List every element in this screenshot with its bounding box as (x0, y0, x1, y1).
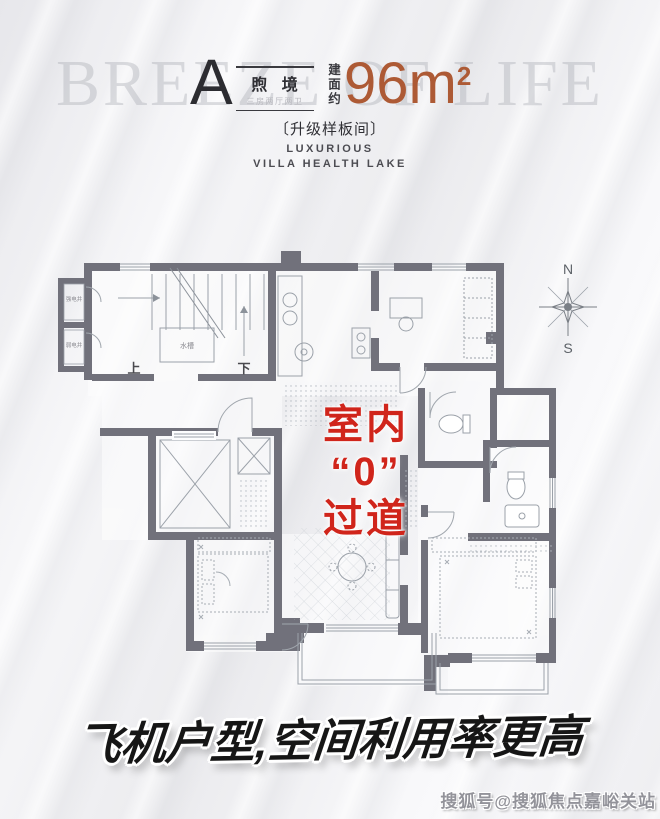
sink-label: 水槽 (180, 341, 194, 350)
callout-line3: 过道 (276, 496, 456, 543)
compass: N S (539, 261, 597, 356)
zero-corridor-callout: 室内 “0” 过道 (276, 402, 456, 542)
compass-north-label: N (563, 261, 573, 277)
stairs-down-label: 下 (237, 361, 250, 376)
sohu-credit-watermark: 搜狐号@搜狐焦点嘉峪关站 (440, 787, 656, 812)
callout-line1: 室内 (276, 402, 456, 449)
bottom-slogan-banner: 飞机户型,空间利用率更高 (15, 699, 645, 775)
strong-electric-shaft-label: 强电井 (66, 295, 83, 303)
stairs-up-label: 上 (127, 361, 140, 376)
weak-electric-shaft-label: 弱电井 (66, 341, 83, 349)
callout-line2: “0” (276, 449, 456, 496)
compass-south-label: S (563, 340, 572, 356)
